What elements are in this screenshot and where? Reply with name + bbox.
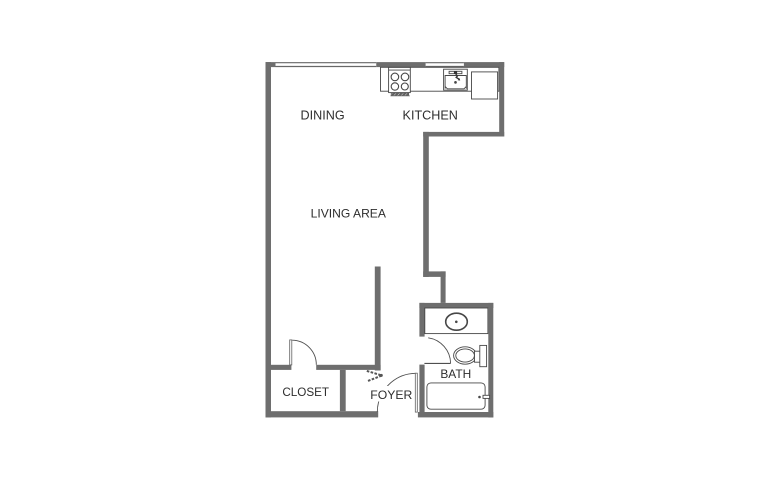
svg-text:FOYER: FOYER (370, 388, 412, 402)
svg-text:BATH: BATH (440, 367, 471, 381)
svg-text:DINING: DINING (301, 109, 345, 123)
svg-text:LIVING AREA: LIVING AREA (311, 206, 387, 220)
svg-text:CLOSET: CLOSET (282, 386, 329, 399)
svg-text:KITCHEN: KITCHEN (403, 109, 458, 123)
